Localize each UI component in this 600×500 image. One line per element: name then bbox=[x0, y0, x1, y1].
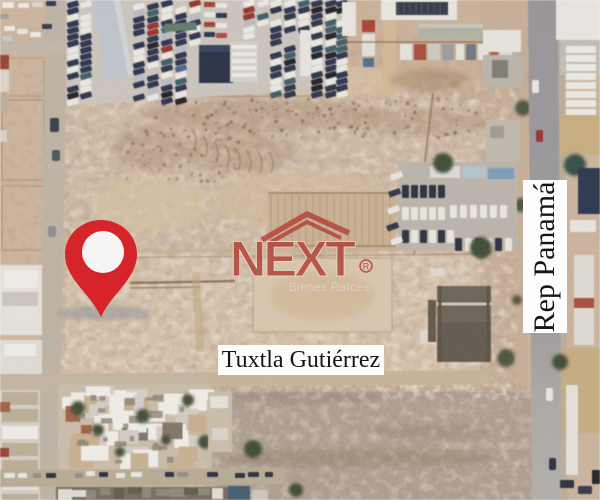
svg-text:NEXT: NEXT bbox=[230, 231, 355, 287]
svg-text:Bienes Raíces: Bienes Raíces bbox=[289, 282, 370, 294]
svg-text:R: R bbox=[363, 262, 370, 272]
